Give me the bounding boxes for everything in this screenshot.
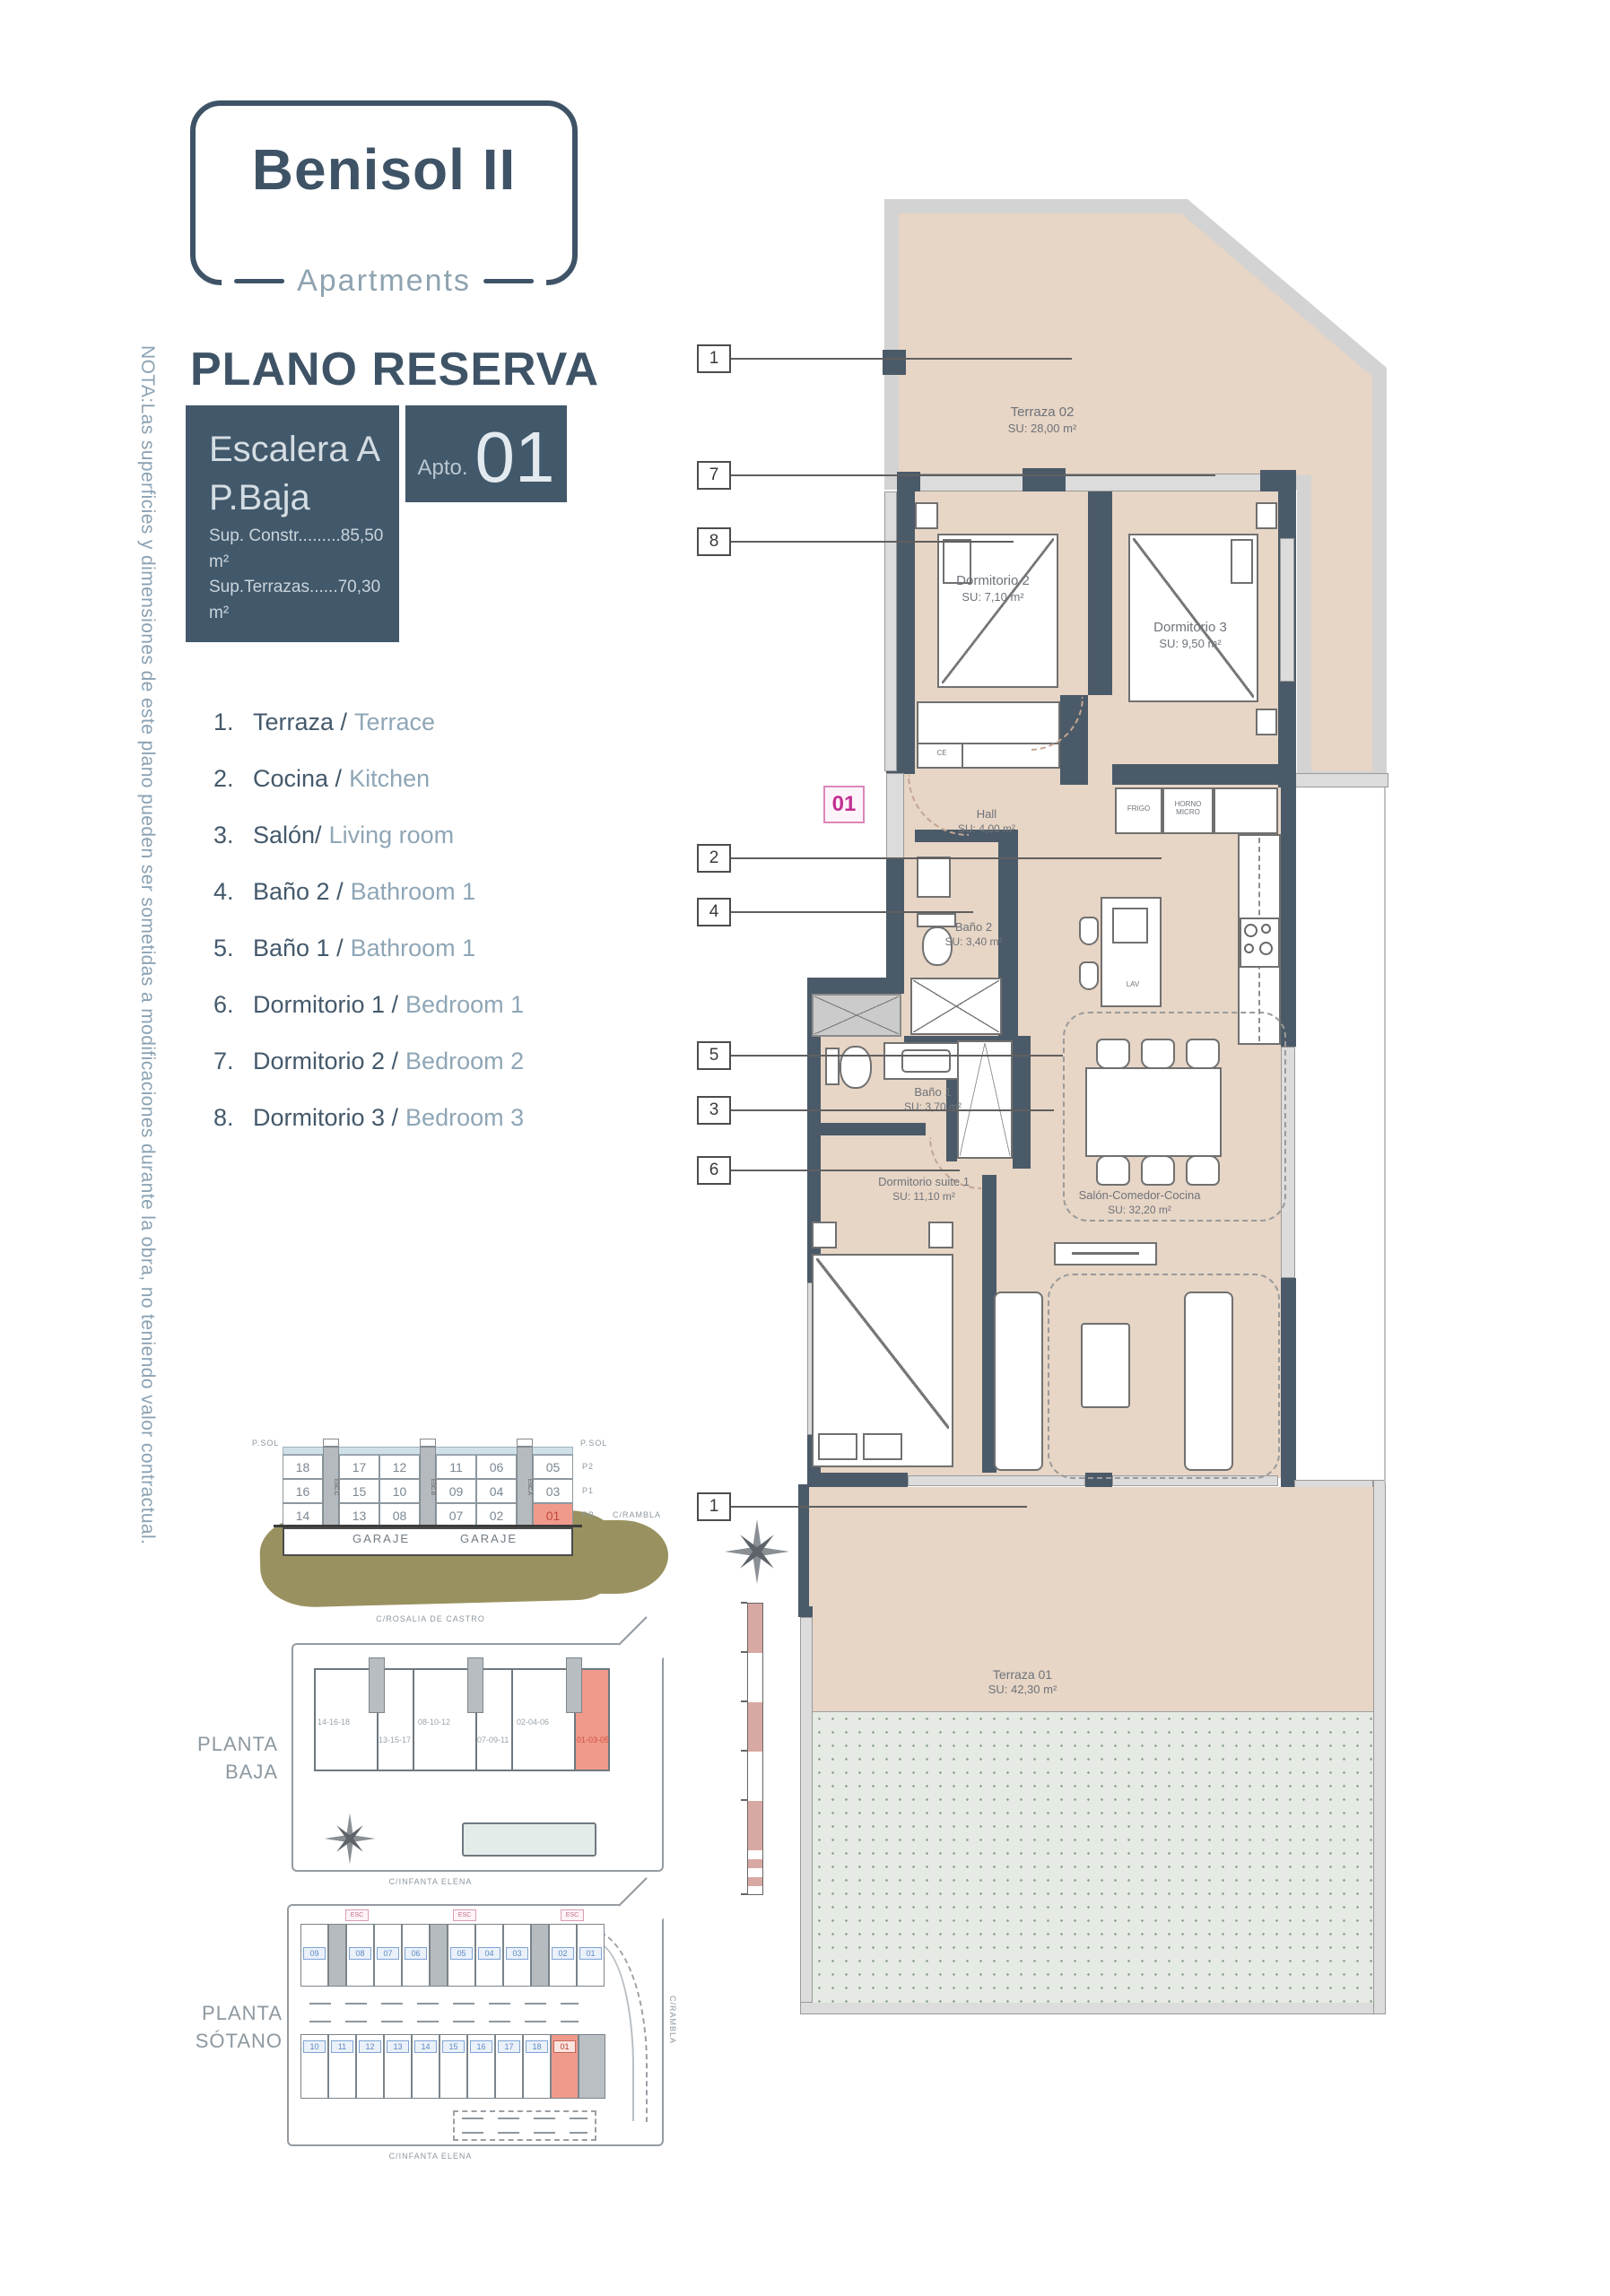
pillow — [863, 1433, 902, 1460]
scale-tick — [741, 1651, 747, 1653]
room-label-suite: Dormitorio suite 1SU: 11,10 m² — [852, 1175, 996, 1204]
wall — [886, 858, 904, 979]
room-label-dormitorio2: Dormitorio 2SU: 7,10 m² — [926, 572, 1060, 604]
terrace-wall-band — [800, 2002, 1386, 2014]
scale-segment — [748, 1801, 762, 1850]
nightstand — [928, 1222, 953, 1248]
dishwasher-label: LAV — [1119, 981, 1146, 989]
wall — [816, 1123, 926, 1135]
room-label-bano2: Baño 2SU: 3,40 m² — [922, 920, 1025, 949]
closet-divider — [962, 744, 963, 769]
terrace-wall-band — [1373, 1480, 1386, 2014]
callout-dormitorio1: 6 — [697, 1156, 731, 1185]
wall — [1112, 764, 1296, 785]
callout-dormitorio2: 7 — [697, 461, 731, 490]
callout-line — [731, 1109, 1054, 1111]
toilet — [840, 1046, 872, 1089]
nightstand — [1256, 709, 1277, 735]
terrace1-floor — [868, 1487, 1281, 1489]
tv-line — [1072, 1252, 1139, 1255]
window-band — [1280, 538, 1294, 682]
boundary-line — [1384, 787, 1386, 1483]
callout-line — [731, 358, 1072, 360]
room-label-terraza02: Terraza 02SU: 28,00 m² — [970, 404, 1114, 436]
scale-tick — [741, 1700, 747, 1702]
nightstand — [1256, 502, 1277, 529]
wall — [807, 978, 904, 994]
closet-ce-label: CE — [924, 750, 960, 758]
wall — [1260, 470, 1296, 493]
nightstand — [812, 1222, 837, 1248]
sofa — [994, 1291, 1043, 1471]
room-label-hall: HallSU: 4,00 m² — [933, 807, 1040, 836]
wall — [1088, 491, 1112, 695]
scale-tick — [741, 1602, 747, 1604]
callout-line — [731, 474, 1215, 476]
callout-bano2: 4 — [697, 898, 731, 926]
dining-chair — [1096, 1155, 1130, 1186]
wall — [798, 1484, 809, 1617]
wall — [1281, 785, 1296, 1047]
plano-reserva-page: NOTA:Las superficies y dimensiones de es… — [0, 0, 1610, 2296]
island-sink — [1112, 908, 1148, 944]
window-band — [884, 491, 897, 771]
sofa — [1184, 1291, 1233, 1471]
compass-rose-icon — [723, 1518, 791, 1586]
pillow — [818, 1433, 857, 1460]
wall-band — [1294, 773, 1388, 787]
callout-line — [731, 857, 1162, 859]
callout-dormitorio3: 8 — [697, 527, 731, 556]
apartment-number-badge: 01 — [823, 786, 865, 823]
window-band — [897, 474, 1278, 491]
callout-line — [731, 541, 1014, 543]
callout-terraza: 1 — [697, 344, 731, 373]
hob-burner — [1261, 924, 1271, 934]
scale-tick — [741, 1750, 747, 1752]
dining-chair — [1096, 1039, 1130, 1069]
wall — [1281, 1278, 1296, 1487]
kitchen-counter — [1214, 787, 1278, 834]
hob-burner — [1244, 944, 1254, 953]
callout-line — [731, 1170, 960, 1171]
wardrobe-x — [913, 980, 999, 1032]
callout-line — [731, 1506, 1027, 1508]
dining-chair — [1186, 1155, 1220, 1186]
fridge-label: FRIGO — [1118, 805, 1160, 813]
wall — [883, 350, 906, 375]
scale-tick — [741, 1799, 747, 1801]
scale-bar — [747, 1603, 763, 1895]
scale-segment — [748, 1604, 762, 1653]
dining-chair — [1186, 1039, 1220, 1069]
coffee-table — [1081, 1323, 1130, 1408]
room-label-terraza01: Terraza 01SU: 42,30 m² — [951, 1666, 1094, 1698]
scale-segment — [748, 1859, 762, 1868]
dining-chair — [1141, 1155, 1175, 1186]
scale-tick — [741, 1893, 747, 1895]
entrance-door — [886, 773, 904, 858]
floor-plan: CE FRIGO HORNO MICRO LAV — [0, 0, 1610, 2296]
dining-table — [1085, 1067, 1222, 1157]
wall — [1023, 468, 1066, 493]
sliding-door — [908, 1475, 1085, 1486]
scale-segment — [748, 1877, 762, 1886]
stool — [1079, 961, 1099, 990]
terrace-wall-band — [800, 1617, 813, 2014]
callout-cocina: 2 — [697, 844, 731, 873]
callout-salon: 3 — [697, 1096, 731, 1125]
toilet-tank — [825, 1048, 840, 1085]
nightstand — [915, 502, 938, 529]
room-label-dormitorio3: Dormitorio 3SU: 9,50 m² — [1123, 619, 1258, 651]
dining-chair — [1141, 1039, 1175, 1069]
callout-bano1: 5 — [697, 1041, 731, 1070]
bathroom-sink — [901, 1049, 951, 1073]
bed-throw-line — [816, 1258, 949, 1429]
oven-label: HORNO MICRO — [1165, 801, 1211, 817]
bed-throw-line — [1133, 538, 1254, 698]
room-label-salon: Salón-Comedor-CocinaSU: 32,20 m² — [1066, 1188, 1214, 1217]
hob-burner — [1244, 924, 1258, 937]
callout-line — [731, 911, 973, 913]
terrace1-paved-area — [813, 1711, 1373, 2003]
wardrobe-v — [985, 1043, 1010, 1156]
bathroom-sink — [917, 857, 951, 898]
callout-line — [731, 1055, 1063, 1057]
bed-throw-line — [942, 538, 1054, 683]
hob-burner — [1259, 942, 1273, 955]
wall — [897, 491, 915, 774]
stool — [1079, 917, 1099, 945]
shower-x — [814, 996, 899, 1034]
scale-segment — [748, 1702, 762, 1752]
